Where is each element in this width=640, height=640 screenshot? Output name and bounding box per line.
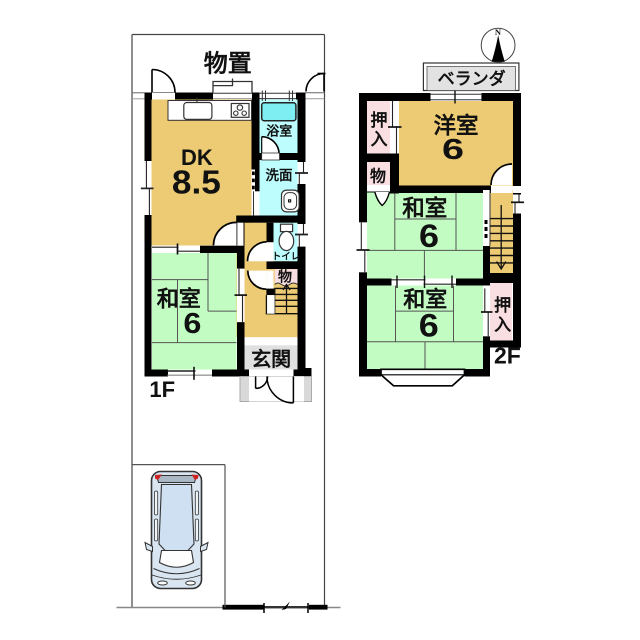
- svg-text:トイレ: トイレ: [272, 252, 301, 263]
- svg-text:物: 物: [278, 269, 292, 285]
- svg-text:物: 物: [370, 167, 386, 186]
- svg-text:玄関: 玄関: [251, 347, 291, 371]
- svg-text:浴室: 浴室: [266, 124, 292, 139]
- svg-text:入: 入: [371, 130, 388, 149]
- svg-text:6: 6: [442, 134, 464, 166]
- svg-text:物置: 物置: [204, 51, 252, 78]
- svg-text:押: 押: [371, 110, 388, 130]
- svg-text:ベランダ: ベランダ: [438, 69, 506, 89]
- svg-text:1F: 1F: [149, 377, 175, 402]
- svg-text:6: 6: [419, 308, 439, 344]
- svg-text:2F: 2F: [494, 343, 521, 369]
- svg-text:洗面: 洗面: [266, 167, 293, 183]
- svg-text:入: 入: [494, 316, 511, 335]
- svg-text:押: 押: [494, 295, 511, 315]
- svg-text:6: 6: [419, 218, 439, 254]
- svg-text:N: N: [495, 27, 502, 37]
- svg-text:6: 6: [183, 308, 201, 340]
- svg-text:8.5: 8.5: [172, 164, 221, 201]
